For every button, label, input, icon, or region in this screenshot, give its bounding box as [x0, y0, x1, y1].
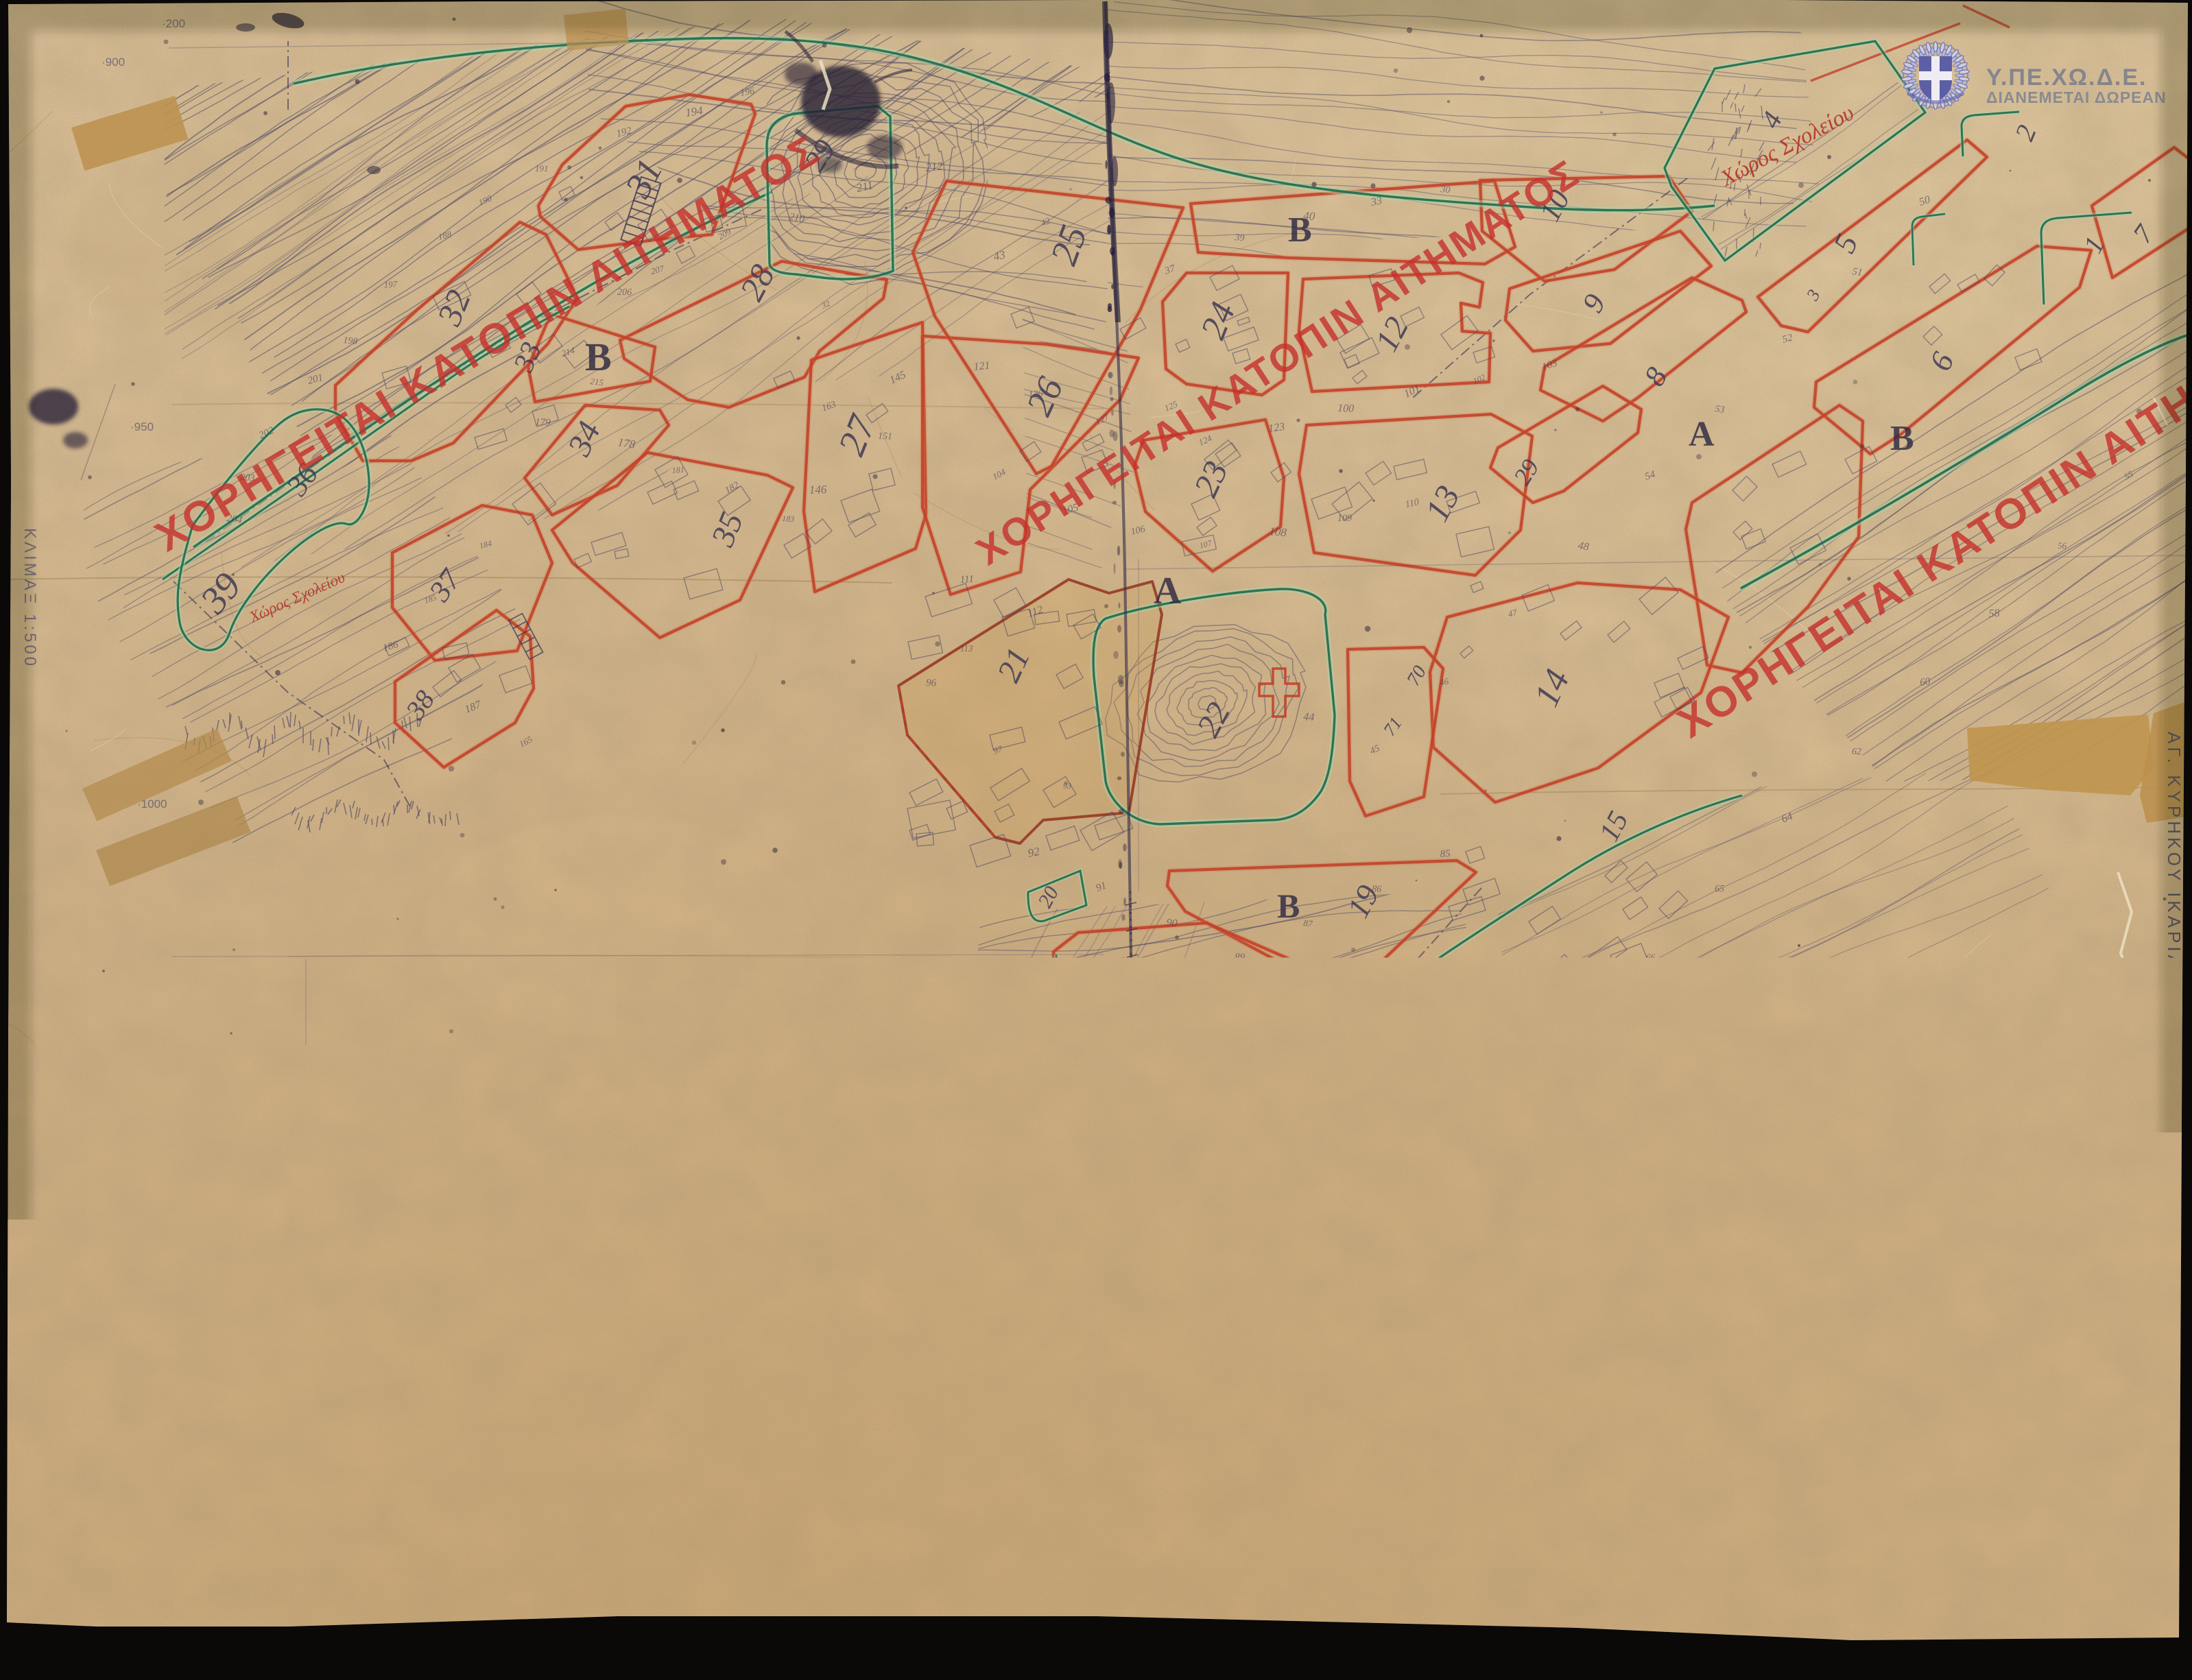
svg-text:ΣΥΣΤΗΜΑ: ΣΥΣΤΗΜΑ — [516, 1338, 552, 1346]
svg-text:ΕΜΒΑΔΟΝ: ΕΜΒΑΔΟΝ — [682, 1336, 718, 1345]
svg-text:215: 215 — [590, 376, 605, 387]
svg-text:A: A — [1154, 570, 1182, 612]
svg-text:174: 174 — [277, 1212, 304, 1232]
svg-text:Α: Α — [494, 1483, 504, 1498]
svg-text:8.00μ.: 8.00μ. — [575, 1509, 609, 1524]
svg-text:56: 56 — [2058, 540, 2067, 551]
svg-text:Ε 30666: Ε 30666 — [795, 1502, 854, 1521]
svg-text:89: 89 — [1235, 952, 1246, 963]
svg-text:ΥΨΟΣ: ΥΨΟΣ — [577, 1459, 601, 1468]
svg-text:85: 85 — [1440, 848, 1451, 860]
svg-text:66: 66 — [1646, 952, 1656, 962]
svg-text:2: 2 — [542, 1509, 549, 1524]
svg-text:ΕΜΒΑΔΑ: ΕΜΒΑΔΑ — [527, 1295, 642, 1315]
svg-text:109: 109 — [1337, 514, 1352, 524]
svg-text:ΠΡΟΣΩΠΟΝ: ΠΡΟΣΩΠΟΝ — [603, 1336, 644, 1345]
svg-text:ΕΝΕΚΡΙΘΗ ΔΙΑ ΤΟΥ ΑΠΟ: ΕΝΕΚΡΙΘΗ ΔΙΑ ΤΟΥ ΑΠΟ — [103, 1197, 225, 1208]
svg-text:σμοῦ τῶν ὅρων καί περιορισμῶν: σμοῦ τῶν ὅρων καί περιορισμῶν δομήσεως — [693, 1127, 916, 1142]
svg-text:179: 179 — [535, 417, 551, 429]
svg-text:40: 40 — [1303, 209, 1315, 223]
svg-text:B: B — [1890, 419, 1914, 458]
svg-text:13 Αὐγούστου: 13 Αὐγούστου — [281, 1239, 375, 1258]
svg-text:Λ: Λ — [518, 1120, 535, 1145]
svg-text:70.00μ²: 70.00μ² — [682, 1360, 714, 1371]
svg-text:198: 198 — [343, 335, 358, 347]
svg-text:πόλεως Θερμῶν Ἀγίου Κυρύκου: πόλεως Θερμῶν Ἀγίου Κυρύκου — [695, 1089, 861, 1103]
svg-text:87: 87 — [1303, 917, 1313, 929]
svg-text:62: 62 — [1852, 747, 1861, 757]
svg-text:τῶν οἰκοπέδων αὐτοῦ.—: τῶν οἰκοπέδων αὐτοῦ.— — [694, 1147, 821, 1161]
svg-text:B: B — [1963, 1293, 1973, 1311]
svg-text:Σ: Σ — [883, 1075, 896, 1098]
svg-text:A: A — [861, 1332, 878, 1358]
svg-text:30: 30 — [1440, 184, 1451, 195]
svg-text:33: 33 — [1370, 195, 1383, 208]
svg-text:ΠΡΟ·ΣΤΑΜΕΝΟΣ ΤΗΣ ΥΠΗΡΕΣΙΑΣ ΟΙΚ: ΠΡΟ·ΣΤΑΜΕΝΟΣ ΤΗΣ ΥΠΗΡΕΣΙΑΣ ΟΙΚΙΣΜΟΥ — [686, 1201, 876, 1212]
svg-text:39: 39 — [1234, 232, 1245, 243]
svg-text:A: A — [593, 1158, 610, 1184]
svg-text:93: 93 — [1063, 781, 1071, 791]
svg-text:5.00 μ: 5.00 μ — [603, 1360, 629, 1371]
svg-text:ΔΙΑΤΑΓΜΑΤΟΣ: ΔΙΑΤΑΓΜΑΤΟΣ — [368, 1197, 431, 1208]
svg-text:Ε 24575/1970: Ε 24575/1970 — [752, 1020, 846, 1038]
svg-text:70: 70 — [340, 1190, 357, 1208]
svg-text:ΟΡΟΦΟΙ: ΟΡΟΦΟΙ — [529, 1459, 563, 1468]
svg-text:146: 146 — [809, 483, 827, 496]
svg-text:178: 178 — [617, 435, 636, 451]
svg-text:194: 194 — [684, 104, 704, 119]
svg-text:65: 65 — [1715, 884, 1724, 894]
svg-text:8.00μ: 8.00μ — [389, 1360, 412, 1371]
svg-text:70%: 70% — [559, 1360, 578, 1371]
svg-text:Ι. ΒΑΣΙΛΕΙΟΥ: Ι. ΒΑΣΙΛΕΙΟΥ — [749, 1304, 837, 1317]
svg-text:191: 191 — [535, 163, 549, 173]
svg-text:Υ.ΠΕ.ΧΩ.Δ.Ε.: Υ.ΠΕ.ΧΩ.Δ.Ε. — [1986, 64, 2147, 91]
svg-text:ΤΟΜΕΥΣ: ΤΟΜΕΥΣ — [483, 1459, 517, 1468]
svg-text:86: 86 — [1372, 884, 1382, 895]
svg-text:70: 70 — [388, 1240, 405, 1258]
svg-text:·900: ·900 — [102, 56, 125, 69]
svg-text:58: 58 — [1988, 608, 2000, 620]
svg-text:20 ῖούλίου: 20 ῖούλίου — [228, 1164, 305, 1185]
svg-text:ΔΗΜΟΣΙΕΥΘΕΝΤΟΣ ΕΙΣ ΤΟ ΥΠʿ ΑΡΙΘ: ΔΗΜΟΣΙΕΥΘΕΝΤΟΣ ΕΙΣ ΤΟ ΥΠʿ ΑΡΙΘ. — [103, 1221, 283, 1232]
svg-text:ΚΑΤΑ ΠΑΡΕΚΚΛΙΣΙΝ: ΚΑΤΑ ΠΑΡΕΚΚΛΙΣΙΝ — [605, 1325, 672, 1333]
svg-text:44: 44 — [1303, 711, 1315, 723]
svg-text:Σ: Σ — [974, 1174, 986, 1195]
svg-text:183: 183 — [782, 514, 795, 524]
svg-text:14 Ἰουλίου: 14 Ἰουλίου — [796, 1173, 863, 1190]
svg-text:A: A — [1689, 415, 1715, 454]
svg-text:126: 126 — [1028, 389, 1043, 400]
svg-text:68: 68 — [1508, 1088, 1517, 1099]
svg-text:48: 48 — [1577, 540, 1590, 553]
svg-text:14 204: 14 204 — [787, 1463, 831, 1483]
svg-text:1970: 1970 — [933, 1171, 965, 1188]
svg-text:90: 90 — [1166, 917, 1178, 930]
svg-text:ΤΗΣ ΕΦΗΜ. ΤΗΣ ΚΥΒΕΡΝΗΣΕΩΣ ΤΗΣ: ΤΗΣ ΕΦΗΜ. ΤΗΣ ΚΥΒΕΡΝΗΣΕΩΣ ΤΗΣ — [103, 1246, 283, 1257]
svg-text:197: 197 — [383, 278, 398, 290]
svg-text:B: B — [585, 335, 612, 379]
svg-text:12.00μ: 12.00μ — [431, 1360, 460, 1371]
svg-text:3: 3 — [541, 1483, 549, 1498]
svg-text:20 ʿΙουλίου: 20 ʿΙουλίου — [226, 1188, 307, 1208]
svg-text:ΒΑΘΟΣ: ΒΑΘΟΣ — [645, 1336, 670, 1345]
svg-text:53: 53 — [1714, 404, 1725, 416]
svg-text:11.00μ.: 11.00μ. — [575, 1483, 615, 1498]
svg-text:19: 19 — [376, 1246, 388, 1257]
svg-text:200.00μ²: 200.00μ² — [474, 1360, 511, 1371]
svg-text:74: 74 — [1200, 1499, 1211, 1511]
svg-text:τοῦ ρυμοτομικοῦ σχεδίου Λουτρο: τοῦ ρυμοτομικοῦ σχεδίου Λουτρο- — [698, 1070, 872, 1084]
svg-text:Θ: Θ — [344, 1059, 366, 1090]
svg-text:78: 78 — [1337, 1292, 1349, 1306]
svg-text:181: 181 — [671, 465, 684, 475]
svg-text:113: 113 — [960, 643, 973, 653]
svg-text:Σ: Σ — [1067, 1265, 1079, 1285]
svg-text:ΥΨΗ: ΥΨΗ — [523, 1424, 575, 1443]
svg-text:82: 82 — [1233, 1051, 1246, 1066]
svg-text:121: 121 — [973, 360, 991, 373]
svg-text:ΕΜΒΑΔΟΝ: ΕΜΒΑΔΟΝ — [475, 1331, 510, 1339]
svg-text:81: 81 — [1200, 1089, 1210, 1100]
svg-text:·950: ·950 — [130, 420, 154, 433]
svg-text:Β: Β — [495, 1509, 503, 1524]
svg-text:B: B — [1277, 887, 1300, 925]
svg-text:ΒΑΘΟΣ: ΒΑΘΟΣ — [432, 1331, 457, 1339]
svg-text:111: 111 — [960, 574, 974, 586]
svg-text:40ΧΧ= 600: 40ΧΧ= 600 — [2032, 992, 2178, 1027]
svg-text:72: 72 — [1372, 1364, 1382, 1375]
svg-text:(Ἰκαρίας) ἐπιβολῆς στοῶν καί κ: (Ἰκαρίας) ἐπιβολῆς στοῶν καί καθορι- — [694, 1108, 892, 1123]
svg-text:ΔΙΑΝΕΜΕΤΑΙ ΔΩΡΕΑΝ: ΔΙΑΝΕΜΕΤΑΙ ΔΩΡΕΑΝ — [1986, 88, 2167, 106]
svg-text:·1000: ·1000 — [137, 797, 167, 811]
svg-text:ΦΥΛΛΟΝ ΤΟΥ Αʿ ΤΕΥΧΟΥΣ: ΦΥΛΛΟΝ ΤΟΥ Αʿ ΤΕΥΧΟΥΣ — [326, 1222, 445, 1232]
svg-text:ΠΕΡΙ ἐγκρίσεως: ΠΕΡΙ ἐγκρίσεως — [773, 1046, 873, 1063]
svg-text:60: 60 — [1919, 676, 1931, 688]
svg-text:·1250: ·1250 — [145, 1310, 175, 1323]
svg-text:51: 51 — [1851, 266, 1863, 278]
svg-text:108: 108 — [1269, 525, 1288, 539]
svg-text:151: 151 — [878, 431, 892, 442]
svg-text:Συνεχές: Συνεχές — [514, 1360, 548, 1371]
svg-text:100: 100 — [1337, 403, 1355, 415]
svg-text:257 1 2: 257 1 2 — [771, 1527, 822, 1546]
svg-text:ΚΑΛΥΨΙΣ: ΚΑΛΥΨΙΣ — [560, 1331, 591, 1339]
svg-text:96: 96 — [926, 677, 937, 689]
svg-text:123: 123 — [1267, 421, 1285, 435]
svg-text:73: 73 — [1269, 1535, 1279, 1546]
svg-text:7.00μ: 7.00μ — [643, 1360, 666, 1371]
svg-text:212: 212 — [925, 159, 944, 174]
svg-text:ΠΡΟΣΩΠΟΝ: ΠΡΟΣΩΠΟΝ — [390, 1331, 431, 1339]
svg-text:70: 70 — [357, 1157, 376, 1178]
